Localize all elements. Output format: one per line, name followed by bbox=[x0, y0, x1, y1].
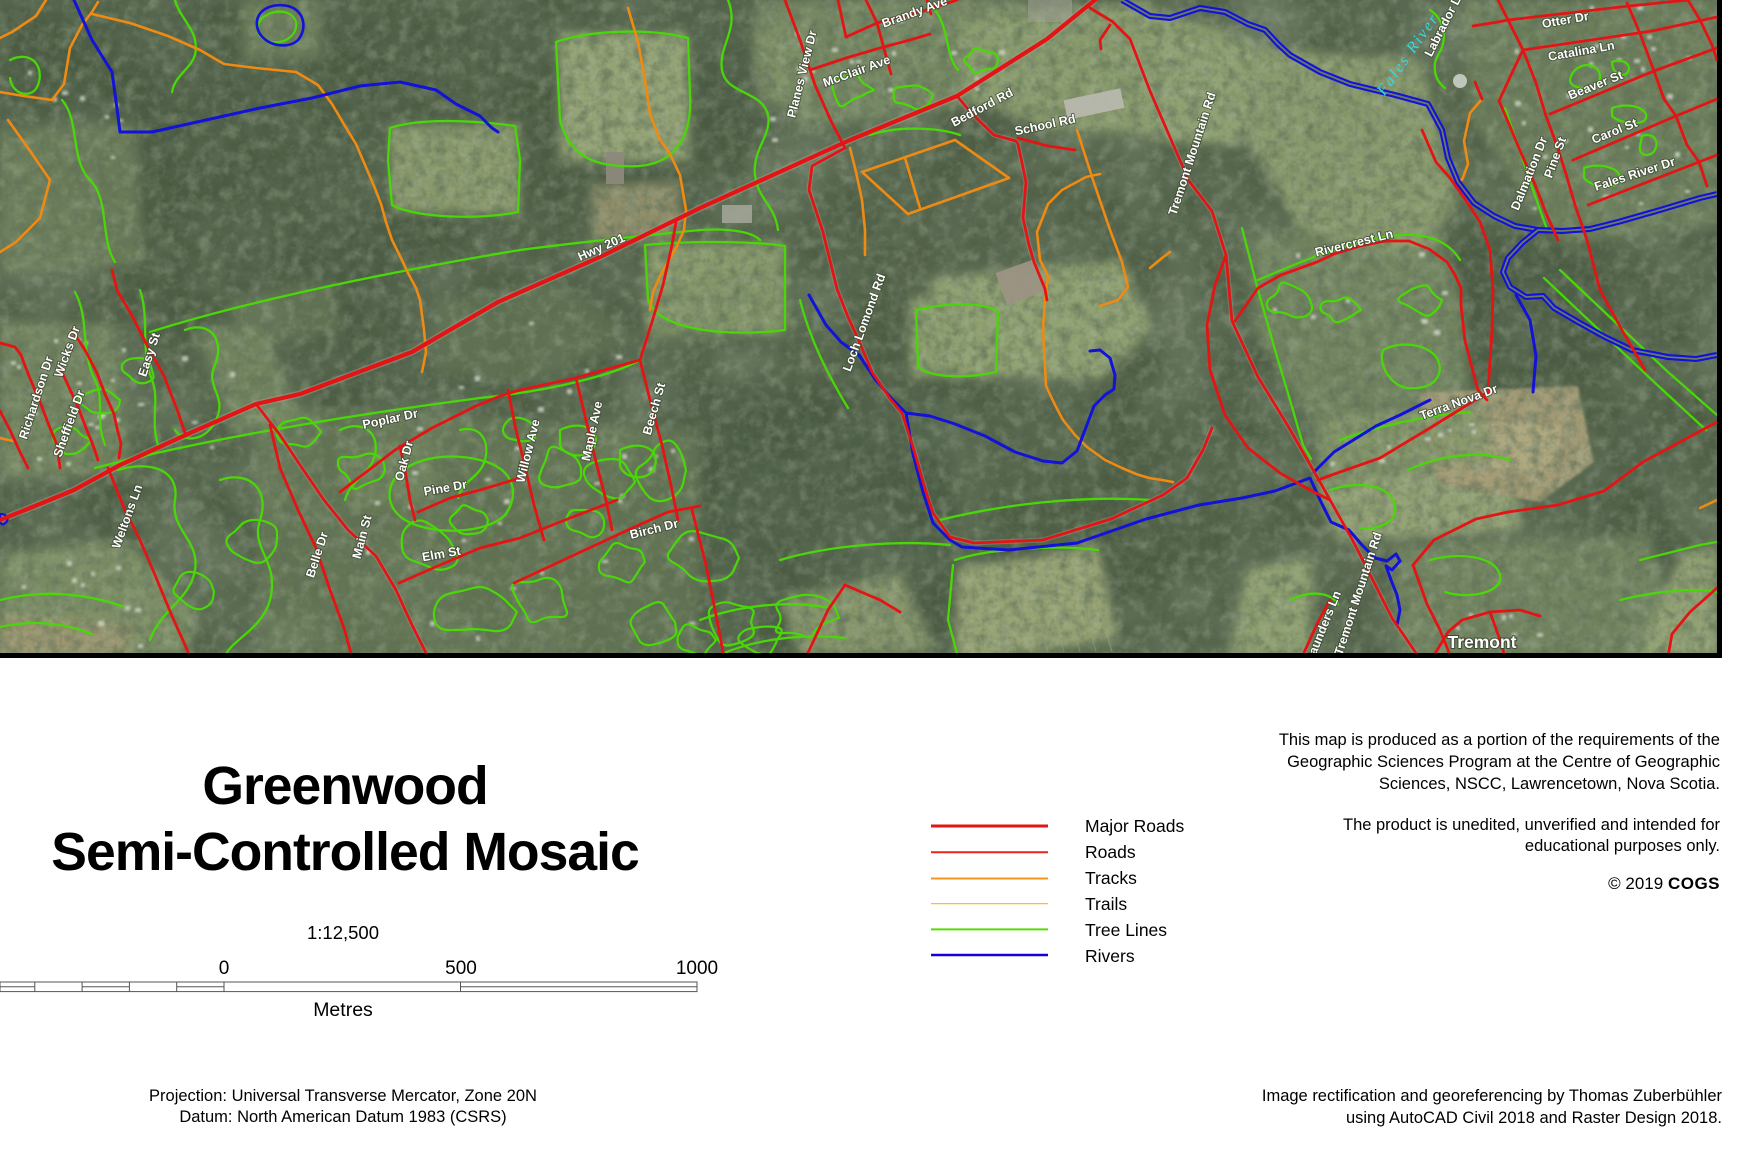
svg-text:Tree Lines: Tree Lines bbox=[1085, 920, 1167, 940]
svg-text:Trails: Trails bbox=[1085, 894, 1127, 914]
svg-text:Tremont: Tremont bbox=[1447, 632, 1516, 652]
svg-text:Rivers: Rivers bbox=[1085, 946, 1135, 966]
